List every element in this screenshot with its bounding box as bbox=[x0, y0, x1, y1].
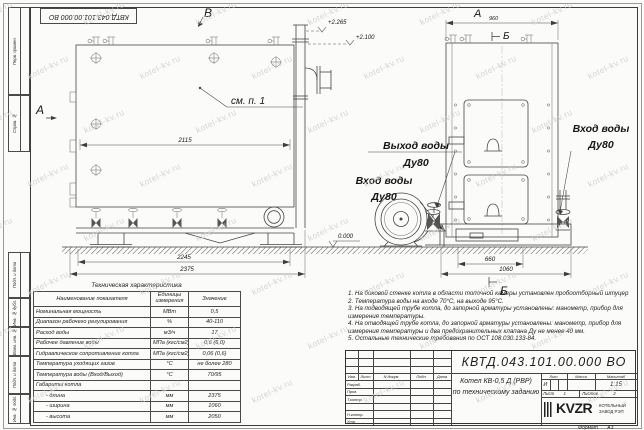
tech-row-unit: мм bbox=[151, 391, 189, 402]
tech-col-header: Единицы измерения bbox=[151, 292, 189, 307]
margin-cell-vzam: Взам. инв. № bbox=[8, 327, 30, 356]
margin-cell-sprav: Справ. № bbox=[8, 95, 30, 152]
tech-row-name: - длина bbox=[34, 391, 151, 402]
tech-row-name: Расход воды bbox=[34, 328, 151, 339]
sheets-cell: Листов 2 bbox=[582, 391, 616, 396]
margin-label: Инв. № подл. bbox=[9, 395, 20, 423]
tech-row-unit: МПа (кгс/см2) bbox=[151, 338, 189, 349]
sheet-cell: Лист 1 bbox=[543, 391, 566, 396]
tech-row-value bbox=[189, 380, 241, 391]
rev-header: Изм. bbox=[346, 374, 358, 379]
note-item: 1. На боковой стенке котла в области топ… bbox=[348, 290, 636, 298]
scale-value: 1:15 bbox=[595, 381, 637, 388]
tech-row-value: 2050 bbox=[189, 412, 241, 423]
margin-label: Перв. примен. bbox=[9, 8, 20, 94]
org-logo: KVZR КОТЕЛЬНЫЙ ЗАВОД РЭП bbox=[544, 400, 636, 422]
product-title-line2: по техническому заданию bbox=[451, 388, 541, 399]
margin-label: Подп. и дата bbox=[9, 253, 20, 297]
format-value: А3 bbox=[607, 425, 613, 430]
titleblock-doc-number: КВТД.043.101.00.000 ВО bbox=[451, 351, 637, 373]
tech-row-unit: МПа (кгс/см2) bbox=[151, 349, 189, 360]
margin-label: Подп. и дата bbox=[9, 357, 20, 393]
tech-row-value: 1060 bbox=[189, 401, 241, 412]
tech-row-value: 17 bbox=[189, 328, 241, 339]
tech-row-name: Номинальная мощность bbox=[34, 307, 151, 318]
margin-cell-perv: Перв. примен. bbox=[8, 7, 30, 95]
format-note: Формат А3 bbox=[578, 425, 613, 430]
sig-row-label: Пров. bbox=[347, 389, 373, 394]
sig-row-label: Разраб. bbox=[347, 382, 373, 387]
tech-row-unit: м3/ч bbox=[151, 328, 189, 339]
tech-row-name: Диапазон рабочего регулирования bbox=[34, 317, 151, 328]
corner-stamp-doc-number: КВТД.043.101.00.000 ВО bbox=[49, 13, 129, 20]
tech-row-name: Габариты котла bbox=[34, 380, 151, 391]
logo-barcode-icon bbox=[544, 402, 553, 417]
sheet-label: Лист bbox=[543, 391, 554, 396]
note-item: 3. На подводящей трубе котла, до запорно… bbox=[348, 305, 636, 320]
tech-row-unit: мм bbox=[151, 412, 189, 423]
sig-row-label: Н.контр. bbox=[347, 412, 373, 417]
sheets-value: 2 bbox=[613, 391, 615, 396]
note-item: 5. Остальные технические требования по О… bbox=[348, 335, 636, 343]
tech-row-unit: % bbox=[151, 317, 189, 328]
tech-row-name: Рабочее давление воды bbox=[34, 338, 151, 349]
logo-text: KVZR bbox=[556, 400, 592, 416]
org-name-line2: ЗАВОД РЭП bbox=[599, 409, 626, 415]
margin-cell-podp2: Подп. и дата bbox=[8, 356, 30, 394]
margin-label: Справ. № bbox=[9, 96, 20, 151]
notes-block: 1. На боковой стенке котла в области топ… bbox=[348, 290, 636, 343]
org-name-line1: КОТЕЛЬНЫЙ bbox=[599, 403, 626, 409]
title-block: КВТД.043.101.00.000 ВО Изм. Лист N докум… bbox=[345, 350, 636, 424]
rev-header: Дата bbox=[433, 374, 451, 379]
product-title-line1: Котел КВ-0,5 Д (РВР) bbox=[451, 377, 541, 388]
tech-row-value: 0,5 bbox=[189, 307, 241, 318]
sheet-value: 1 bbox=[564, 391, 566, 396]
margin-cell-inv-dubl: Инв. № дубл. bbox=[8, 298, 30, 327]
tech-row-unit: °С bbox=[151, 370, 189, 381]
tech-row-name: Гидравлическое сопротивление котла bbox=[34, 349, 151, 360]
tech-col-header: Значение bbox=[189, 292, 241, 307]
tech-row-name: - высота bbox=[34, 412, 151, 423]
lit-value: И bbox=[541, 382, 550, 388]
tech-row-value: 0,06 (0,6) bbox=[189, 349, 241, 360]
note-item: 4. На отводящей трубе котла, до запорной… bbox=[348, 320, 636, 335]
tech-row-unit bbox=[151, 380, 189, 391]
tech-row-unit: мм bbox=[151, 401, 189, 412]
margin-cell-podp1: Подп. и дата bbox=[8, 252, 30, 298]
tech-row-unit: МВт bbox=[151, 307, 189, 318]
sheets-label: Листов bbox=[582, 391, 598, 396]
scale-label: Масштаб bbox=[595, 374, 637, 379]
tech-row-name: Температура воды (Вход/Выход) bbox=[34, 370, 151, 381]
margin-cell-inv-podl: Инв. № подл. bbox=[8, 394, 30, 424]
lit-label: Лит. bbox=[541, 374, 567, 379]
tech-row-value: 0,6 (6,0) bbox=[189, 338, 241, 349]
mass-label: Масса bbox=[567, 374, 595, 379]
margin-label: Взам. инв. № bbox=[9, 328, 20, 355]
tech-table: Наименование показателя Единицы измерени… bbox=[33, 291, 241, 423]
tech-row-unit: °С bbox=[151, 359, 189, 370]
sig-row-label: Т.контр. bbox=[347, 397, 373, 402]
margin-label: Инв. № дубл. bbox=[9, 299, 20, 326]
tech-row-value: не более 280 bbox=[189, 359, 241, 370]
rev-header: Лист bbox=[358, 374, 373, 379]
tech-row-name: - ширина bbox=[34, 401, 151, 412]
rev-header: N докум. bbox=[373, 374, 410, 379]
format-label: Формат bbox=[578, 425, 598, 430]
tech-row-name: Температура уходящих газов bbox=[34, 359, 151, 370]
tech-row-value: 70/95 bbox=[189, 370, 241, 381]
sig-row-label: Утв. bbox=[347, 419, 373, 424]
drawing-sheet: В А А 960 Б Б +2.265 +2.100 0.000 см. п.… bbox=[0, 0, 644, 430]
tech-table-title: Техническая характеристика bbox=[33, 282, 240, 289]
note-item: 2. Температура воды на входе 70°С, на вы… bbox=[348, 298, 636, 306]
corner-stamp: КВТД.043.101.00.000 ВО bbox=[40, 8, 137, 24]
rev-header: Подп. bbox=[410, 374, 433, 379]
tech-row-value: 40-110 bbox=[189, 317, 241, 328]
tech-row-value: 2375 bbox=[189, 391, 241, 402]
tech-col-header: Наименование показателя bbox=[34, 292, 151, 307]
